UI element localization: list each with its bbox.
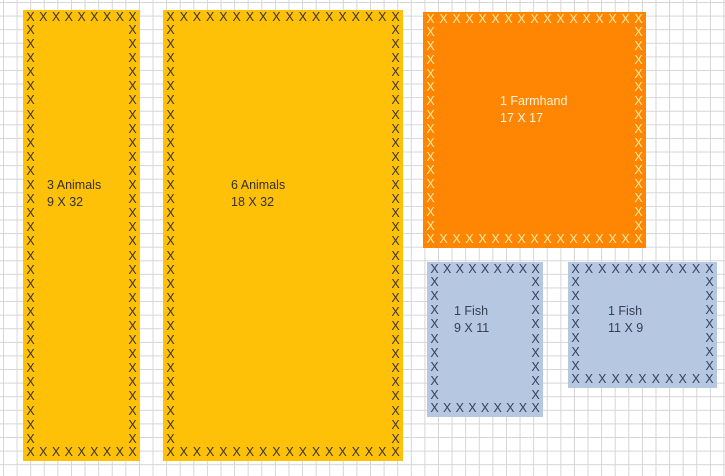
x-mark: X <box>493 402 502 415</box>
x-mark: X <box>285 11 294 24</box>
x-mark: X <box>26 320 35 333</box>
x-mark: X <box>452 13 461 26</box>
x-mark: X <box>245 11 254 24</box>
x-mark: X <box>365 446 374 459</box>
grid-canvas: XXXXXXXXXXXXXXXXXXXXXXXXXXXXXXXXXXXXXXXX… <box>0 0 725 476</box>
x-mark: X <box>90 11 99 24</box>
x-mark: X <box>430 333 439 346</box>
x-mark: X <box>298 446 307 459</box>
x-mark: X <box>634 95 643 108</box>
region-label-line1: 6 Animals <box>231 177 285 194</box>
x-mark: X <box>426 81 435 94</box>
x-border-bottom: XXXXXXXXXXX <box>571 373 714 386</box>
x-mark: X <box>166 446 175 459</box>
x-mark: X <box>26 348 35 361</box>
x-border-right: XXXXXXXXXXXXXXX <box>634 26 643 233</box>
x-mark: X <box>439 233 448 246</box>
x-mark: X <box>26 80 35 93</box>
x-mark: X <box>103 446 112 459</box>
x-mark: X <box>128 250 137 263</box>
x-mark: X <box>166 348 175 361</box>
x-mark: X <box>26 179 35 192</box>
x-mark: X <box>426 13 435 26</box>
x-mark: X <box>285 446 294 459</box>
x-mark: X <box>115 446 124 459</box>
x-mark: X <box>571 332 580 345</box>
x-mark: X <box>166 221 175 234</box>
x-mark: X <box>351 11 360 24</box>
x-mark: X <box>569 233 578 246</box>
x-mark: X <box>391 123 400 136</box>
x-mark: X <box>531 318 540 331</box>
x-mark: X <box>128 94 137 107</box>
x-mark: X <box>26 207 35 220</box>
x-mark: X <box>426 137 435 150</box>
x-mark: X <box>665 263 674 276</box>
x-mark: X <box>391 334 400 347</box>
region-label-line1: 1 Farmhand <box>500 93 567 110</box>
x-mark: X <box>26 292 35 305</box>
x-mark: X <box>531 276 540 289</box>
x-mark: X <box>493 263 502 276</box>
region-label-line2: 9 X 11 <box>454 320 489 337</box>
x-mark: X <box>166 151 175 164</box>
x-mark: X <box>128 334 137 347</box>
x-mark: X <box>166 419 175 432</box>
x-mark: X <box>219 11 228 24</box>
x-mark: X <box>166 390 175 403</box>
x-mark: X <box>128 446 137 459</box>
x-mark: X <box>26 376 35 389</box>
x-mark: X <box>426 233 435 246</box>
x-mark: X <box>166 165 175 178</box>
x-mark: X <box>705 346 714 359</box>
x-mark: X <box>465 233 474 246</box>
x-mark: X <box>571 360 580 373</box>
x-mark: X <box>705 332 714 345</box>
x-mark: X <box>103 11 112 24</box>
x-mark: X <box>26 405 35 418</box>
x-mark: X <box>491 13 500 26</box>
x-mark: X <box>166 250 175 263</box>
x-mark: X <box>128 292 137 305</box>
x-mark: X <box>531 375 540 388</box>
x-mark: X <box>166 193 175 206</box>
x-mark: X <box>651 263 660 276</box>
x-mark: X <box>426 123 435 136</box>
x-mark: X <box>571 276 580 289</box>
x-mark: X <box>26 221 35 234</box>
x-mark: X <box>443 402 452 415</box>
x-border-left: XXXXXXXXXXXXXXXXXXXXXXXXXXXXXX <box>166 24 175 446</box>
x-mark: X <box>608 233 617 246</box>
x-mark: X <box>391 306 400 319</box>
x-mark: X <box>443 263 452 276</box>
x-mark: X <box>426 164 435 177</box>
x-mark: X <box>166 179 175 192</box>
x-mark: X <box>571 373 580 386</box>
region-label-line2: 18 X 32 <box>231 194 285 211</box>
x-mark: X <box>90 446 99 459</box>
x-mark: X <box>391 52 400 65</box>
x-mark: X <box>26 362 35 375</box>
region-label-line1: 1 Fish <box>454 303 489 320</box>
x-mark: X <box>26 250 35 263</box>
x-mark: X <box>391 362 400 375</box>
x-mark: X <box>598 373 607 386</box>
x-mark: X <box>26 38 35 51</box>
x-mark: X <box>452 233 461 246</box>
x-mark: X <box>426 192 435 205</box>
x-mark: X <box>26 306 35 319</box>
x-mark: X <box>556 233 565 246</box>
x-mark: X <box>530 13 539 26</box>
x-mark: X <box>634 109 643 122</box>
x-mark: X <box>219 446 228 459</box>
x-mark: X <box>179 446 188 459</box>
x-mark: X <box>391 179 400 192</box>
x-mark: X <box>531 263 540 276</box>
x-mark: X <box>26 264 35 277</box>
x-mark: X <box>426 151 435 164</box>
x-mark: X <box>245 446 254 459</box>
x-mark: X <box>128 235 137 248</box>
x-border-top: XXXXXXXXX <box>26 11 137 24</box>
x-mark: X <box>128 193 137 206</box>
x-mark: X <box>426 95 435 108</box>
x-mark: X <box>634 81 643 94</box>
x-mark: X <box>166 306 175 319</box>
x-mark: X <box>531 389 540 402</box>
x-mark: X <box>166 52 175 65</box>
x-mark: X <box>128 348 137 361</box>
region-label-line2: 9 X 32 <box>47 194 101 211</box>
x-mark: X <box>391 193 400 206</box>
x-mark: X <box>465 13 474 26</box>
x-border-top: XXXXXXXXXXX <box>571 263 714 276</box>
x-mark: X <box>571 290 580 303</box>
region-label-line1: 1 Fish <box>608 303 643 320</box>
x-mark: X <box>391 38 400 51</box>
x-mark: X <box>426 220 435 233</box>
x-mark: X <box>391 446 400 459</box>
x-mark: X <box>26 109 35 122</box>
x-border-bottom: XXXXXXXXX <box>430 402 540 415</box>
x-mark: X <box>26 334 35 347</box>
region-6-animals: XXXXXXXXXXXXXXXXXXXXXXXXXXXXXXXXXXXXXXXX… <box>163 10 403 461</box>
x-mark: X <box>705 318 714 331</box>
x-mark: X <box>504 233 513 246</box>
x-mark: X <box>26 24 35 37</box>
region-1-farmhand: XXXXXXXXXXXXXXXXXXXXXXXXXXXXXXXXXXXXXXXX… <box>423 12 646 248</box>
x-mark: X <box>166 11 175 24</box>
x-mark: X <box>705 373 714 386</box>
x-mark: X <box>426 68 435 81</box>
x-mark: X <box>531 347 540 360</box>
x-mark: X <box>391 390 400 403</box>
x-mark: X <box>391 376 400 389</box>
x-mark: X <box>430 290 439 303</box>
x-border-top: XXXXXXXXXXXXXXXXX <box>426 13 643 26</box>
x-mark: X <box>391 264 400 277</box>
x-mark: X <box>506 402 515 415</box>
x-mark: X <box>391 292 400 305</box>
x-mark: X <box>26 446 35 459</box>
x-mark: X <box>518 263 527 276</box>
x-mark: X <box>481 402 490 415</box>
x-mark: X <box>26 165 35 178</box>
x-mark: X <box>426 178 435 191</box>
x-mark: X <box>426 109 435 122</box>
x-mark: X <box>128 419 137 432</box>
x-mark: X <box>166 405 175 418</box>
x-mark: X <box>391 151 400 164</box>
x-mark: X <box>678 373 687 386</box>
x-mark: X <box>26 390 35 403</box>
x-mark: X <box>634 26 643 39</box>
x-mark: X <box>378 11 387 24</box>
x-mark: X <box>166 376 175 389</box>
x-mark: X <box>166 264 175 277</box>
region-label: 1 Farmhand17 X 17 <box>500 93 567 127</box>
x-mark: X <box>128 264 137 277</box>
x-mark: X <box>391 80 400 93</box>
x-mark: X <box>634 192 643 205</box>
x-mark: X <box>128 52 137 65</box>
x-mark: X <box>232 446 241 459</box>
x-border-left: XXXXXXXXX <box>430 276 439 402</box>
x-mark: X <box>517 13 526 26</box>
x-mark: X <box>543 233 552 246</box>
x-mark: X <box>26 193 35 206</box>
x-mark: X <box>571 318 580 331</box>
x-border-right: XXXXXXX <box>705 276 714 373</box>
x-mark: X <box>391 66 400 79</box>
x-mark: X <box>166 320 175 333</box>
x-mark: X <box>584 373 593 386</box>
x-mark: X <box>468 402 477 415</box>
x-mark: X <box>64 11 73 24</box>
x-border-right: XXXXXXXXXXXXXXXXXXXXXXXXXXXXXX <box>128 24 137 446</box>
x-mark: X <box>705 290 714 303</box>
x-mark: X <box>634 137 643 150</box>
x-mark: X <box>608 13 617 26</box>
x-mark: X <box>26 278 35 291</box>
x-mark: X <box>638 263 647 276</box>
x-mark: X <box>518 402 527 415</box>
x-mark: X <box>312 11 321 24</box>
x-mark: X <box>638 373 647 386</box>
x-mark: X <box>128 433 137 446</box>
x-mark: X <box>391 250 400 263</box>
x-mark: X <box>128 179 137 192</box>
x-mark: X <box>692 373 701 386</box>
x-mark: X <box>26 52 35 65</box>
x-mark: X <box>378 446 387 459</box>
x-mark: X <box>166 123 175 136</box>
x-border-left: XXXXXXX <box>571 276 580 373</box>
x-mark: X <box>26 137 35 150</box>
x-mark: X <box>128 137 137 150</box>
x-mark: X <box>128 376 137 389</box>
x-mark: X <box>582 233 591 246</box>
x-mark: X <box>571 304 580 317</box>
x-mark: X <box>166 362 175 375</box>
x-mark: X <box>678 263 687 276</box>
x-mark: X <box>571 263 580 276</box>
x-mark: X <box>491 233 500 246</box>
x-mark: X <box>26 123 35 136</box>
x-mark: X <box>128 38 137 51</box>
x-mark: X <box>64 446 73 459</box>
x-mark: X <box>338 11 347 24</box>
x-mark: X <box>391 235 400 248</box>
x-mark: X <box>128 123 137 136</box>
x-mark: X <box>531 361 540 374</box>
x-mark: X <box>430 375 439 388</box>
x-mark: X <box>128 165 137 178</box>
x-mark: X <box>517 233 526 246</box>
x-mark: X <box>543 13 552 26</box>
x-mark: X <box>26 151 35 164</box>
x-mark: X <box>166 292 175 305</box>
region-label-line2: 17 X 17 <box>500 110 567 127</box>
x-mark: X <box>391 320 400 333</box>
x-mark: X <box>455 263 464 276</box>
x-mark: X <box>166 334 175 347</box>
x-mark: X <box>556 13 565 26</box>
x-mark: X <box>478 13 487 26</box>
x-mark: X <box>705 304 714 317</box>
x-mark: X <box>665 373 674 386</box>
x-mark: X <box>351 446 360 459</box>
x-mark: X <box>166 109 175 122</box>
x-mark: X <box>634 40 643 53</box>
x-mark: X <box>595 13 604 26</box>
x-mark: X <box>598 263 607 276</box>
x-mark: X <box>692 263 701 276</box>
region-label: 1 Fish11 X 9 <box>608 303 643 337</box>
x-mark: X <box>166 278 175 291</box>
x-mark: X <box>611 373 620 386</box>
x-mark: X <box>166 38 175 51</box>
x-mark: X <box>625 263 634 276</box>
x-mark: X <box>77 446 86 459</box>
x-mark: X <box>595 233 604 246</box>
x-mark: X <box>430 276 439 289</box>
region-label: 3 Animals9 X 32 <box>47 177 101 211</box>
x-mark: X <box>26 66 35 79</box>
x-mark: X <box>128 405 137 418</box>
x-mark: X <box>426 54 435 67</box>
region-label: 6 Animals18 X 32 <box>231 177 285 211</box>
x-mark: X <box>391 278 400 291</box>
x-mark: X <box>430 263 439 276</box>
x-mark: X <box>430 389 439 402</box>
x-mark: X <box>634 151 643 164</box>
x-mark: X <box>298 11 307 24</box>
x-mark: X <box>705 276 714 289</box>
x-mark: X <box>128 66 137 79</box>
x-border-left: XXXXXXXXXXXXXXXXXXXXXXXXXXXXXX <box>26 24 35 446</box>
x-mark: X <box>39 11 48 24</box>
x-mark: X <box>77 11 86 24</box>
x-mark: X <box>272 11 281 24</box>
x-mark: X <box>705 360 714 373</box>
x-mark: X <box>128 362 137 375</box>
x-mark: X <box>232 11 241 24</box>
x-mark: X <box>128 24 137 37</box>
x-border-top: XXXXXXXXX <box>430 263 540 276</box>
x-mark: X <box>439 13 448 26</box>
x-mark: X <box>206 446 215 459</box>
x-mark: X <box>166 94 175 107</box>
x-border-top: XXXXXXXXXXXXXXXXXX <box>166 11 400 24</box>
x-mark: X <box>391 221 400 234</box>
x-mark: X <box>272 446 281 459</box>
x-mark: X <box>430 361 439 374</box>
x-mark: X <box>430 402 439 415</box>
x-mark: X <box>391 433 400 446</box>
x-mark: X <box>634 220 643 233</box>
x-mark: X <box>128 221 137 234</box>
x-mark: X <box>26 419 35 432</box>
x-mark: X <box>26 235 35 248</box>
x-mark: X <box>26 94 35 107</box>
x-mark: X <box>325 11 334 24</box>
x-mark: X <box>391 11 400 24</box>
x-mark: X <box>430 304 439 317</box>
x-mark: X <box>391 24 400 37</box>
x-mark: X <box>312 446 321 459</box>
x-mark: X <box>26 11 35 24</box>
x-mark: X <box>611 263 620 276</box>
x-mark: X <box>26 433 35 446</box>
x-border-right: XXXXXXXXX <box>531 276 540 402</box>
x-mark: X <box>365 11 374 24</box>
x-mark: X <box>128 207 137 220</box>
x-mark: X <box>584 263 593 276</box>
x-mark: X <box>634 206 643 219</box>
x-mark: X <box>430 347 439 360</box>
x-mark: X <box>52 446 61 459</box>
region-1-fish-9x11: XXXXXXXXXXXXXXXXXXXXXXXXXXXXXXXXXXXX1 Fi… <box>427 262 543 417</box>
x-mark: X <box>634 233 643 246</box>
x-mark: X <box>166 66 175 79</box>
x-mark: X <box>166 433 175 446</box>
x-mark: X <box>391 137 400 150</box>
x-mark: X <box>468 263 477 276</box>
x-mark: X <box>531 304 540 317</box>
x-mark: X <box>166 235 175 248</box>
x-mark: X <box>569 13 578 26</box>
region-label-line1: 3 Animals <box>47 177 101 194</box>
x-mark: X <box>391 419 400 432</box>
region-label: 1 Fish9 X 11 <box>454 303 489 337</box>
x-mark: X <box>582 13 591 26</box>
x-mark: X <box>338 446 347 459</box>
x-mark: X <box>455 402 464 415</box>
x-mark: X <box>128 109 137 122</box>
x-mark: X <box>179 11 188 24</box>
x-mark: X <box>634 13 643 26</box>
x-mark: X <box>128 306 137 319</box>
x-mark: X <box>426 40 435 53</box>
x-mark: X <box>634 164 643 177</box>
x-mark: X <box>128 390 137 403</box>
x-mark: X <box>391 405 400 418</box>
x-border-bottom: XXXXXXXXXXXXXXXXX <box>426 233 643 246</box>
